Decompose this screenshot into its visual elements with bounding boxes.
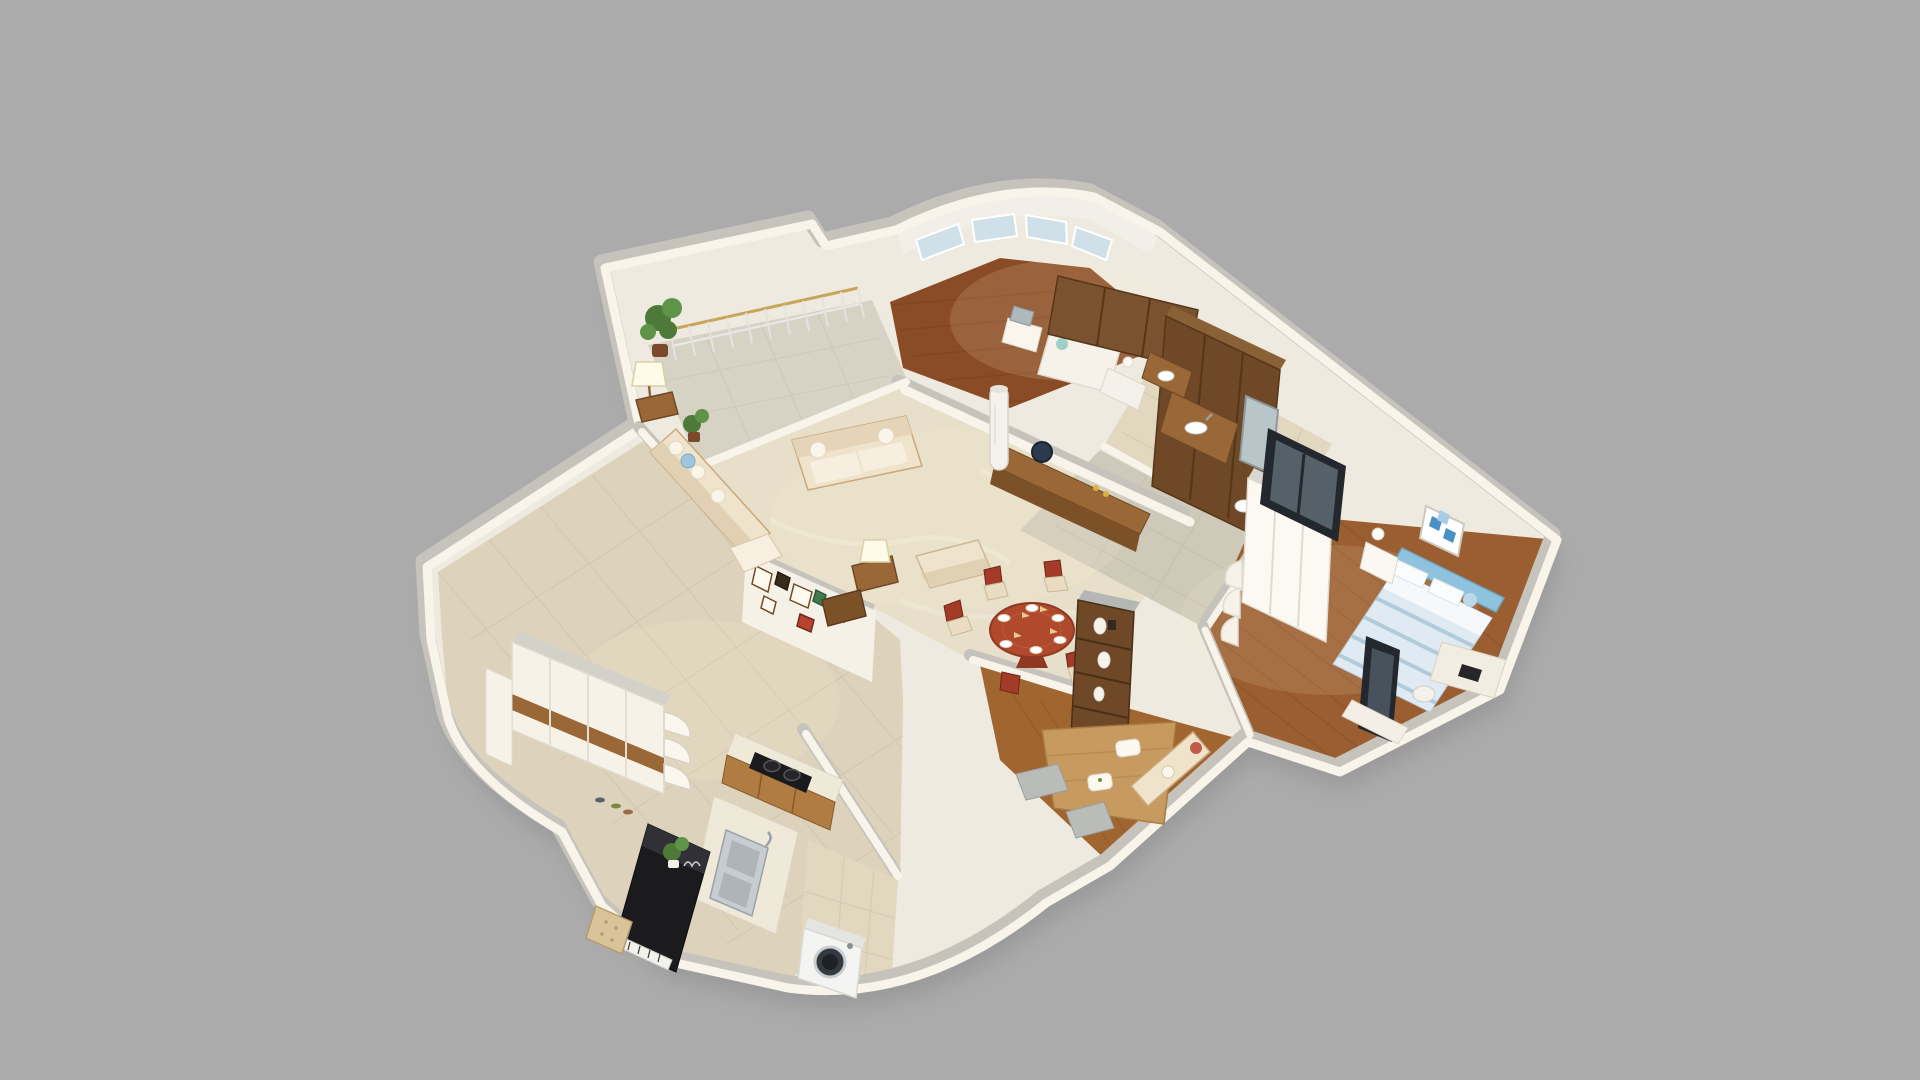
desk-chair <box>1413 686 1435 702</box>
ball-lamp <box>1372 528 1384 540</box>
blue-pillow <box>681 454 695 468</box>
accent-pillow <box>1463 593 1477 607</box>
ac-column <box>990 385 1008 470</box>
corner-column <box>486 668 512 766</box>
floorplan-render: Cutaway top-down 3D render of a furnishe… <box>0 0 1920 1080</box>
corner-shelves <box>664 712 690 790</box>
red-pillow <box>1190 742 1202 754</box>
stool <box>1123 357 1133 367</box>
sink-basin <box>1185 422 1207 434</box>
table-lamp <box>860 540 890 562</box>
washer-knob <box>847 943 853 949</box>
render-canvas <box>0 0 1920 1080</box>
white-vase <box>1094 618 1106 634</box>
burner <box>764 761 780 772</box>
teal-cushion <box>1056 338 1068 350</box>
white-vase <box>1094 687 1104 701</box>
dark-bottle <box>1108 620 1116 630</box>
white-vase <box>1098 652 1110 668</box>
floral-pillow <box>1162 766 1174 778</box>
decor-fan <box>1032 442 1052 462</box>
burner <box>784 770 800 781</box>
